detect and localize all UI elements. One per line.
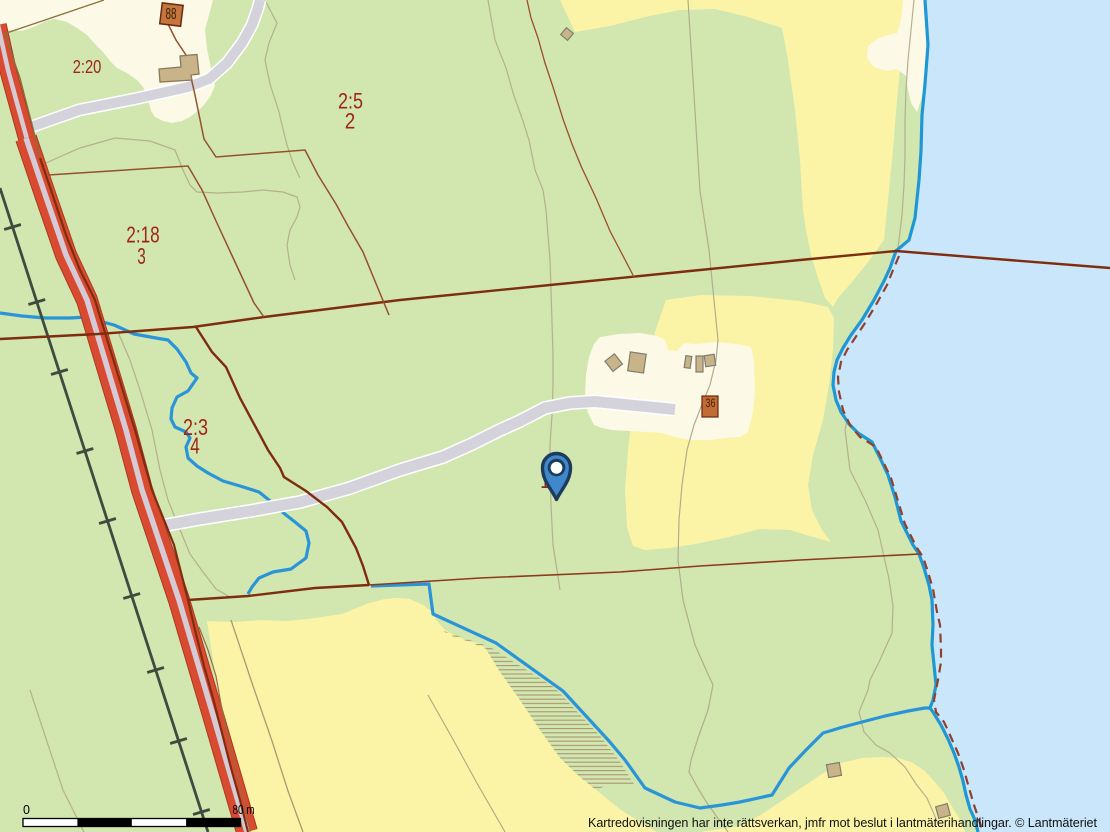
svg-text:0: 0 [23,803,30,817]
svg-text:Kartredovisningen har inte rät: Kartredovisningen har inte rättsverkan, … [588,816,1098,830]
svg-text:88: 88 [166,6,177,23]
svg-text:36: 36 [706,396,716,410]
svg-text:80 m: 80 m [233,803,255,817]
svg-text:3: 3 [137,243,146,269]
svg-text:2:20: 2:20 [73,57,102,77]
svg-text:2: 2 [345,109,356,134]
svg-text:4: 4 [190,433,200,459]
